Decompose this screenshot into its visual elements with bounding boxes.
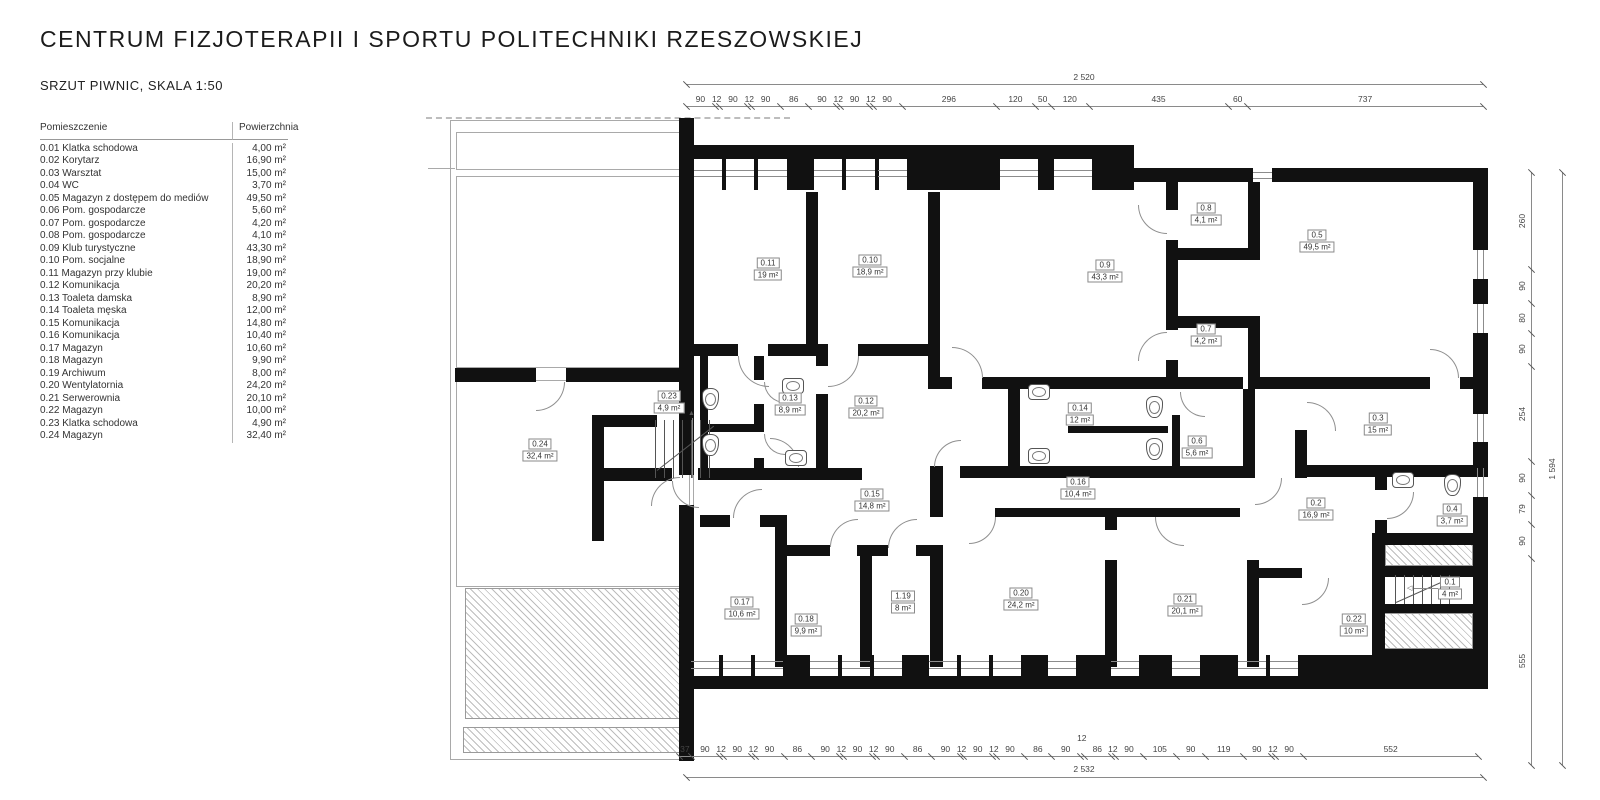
door-arc bbox=[1180, 392, 1205, 417]
dim-segment-label: 12 bbox=[834, 94, 843, 104]
wall bbox=[1021, 655, 1048, 676]
wall bbox=[1068, 426, 1168, 433]
room-label-0-20: 0.2024,2 m² bbox=[1003, 588, 1038, 611]
room-label-0-9: 0.943,3 m² bbox=[1087, 260, 1122, 283]
wall bbox=[700, 515, 730, 527]
dim-total-line bbox=[686, 777, 1483, 778]
wall bbox=[875, 159, 879, 190]
room-number: 0.4 bbox=[1442, 504, 1461, 515]
room-label-0-6: 0.65,6 m² bbox=[1182, 436, 1213, 459]
door-arc bbox=[1155, 517, 1184, 546]
door-arc bbox=[934, 440, 961, 467]
door-arc bbox=[969, 517, 996, 544]
dim-segment-label: 737 bbox=[1358, 94, 1372, 104]
dim-segment-label: 80 bbox=[1517, 313, 1527, 322]
wall bbox=[455, 368, 536, 382]
wall bbox=[1038, 159, 1054, 190]
window-glazing bbox=[1477, 304, 1478, 333]
door-arc bbox=[1138, 332, 1167, 361]
wall bbox=[1248, 316, 1260, 389]
room-number: 0.8 bbox=[1196, 203, 1215, 214]
room-area: 24,2 m² bbox=[1003, 600, 1038, 611]
wall bbox=[679, 505, 694, 761]
wall bbox=[783, 655, 810, 676]
dim-segment-label: 86 bbox=[793, 744, 802, 754]
room-area: 43,3 m² bbox=[1087, 272, 1122, 283]
room-number: 0.9 bbox=[1095, 260, 1114, 271]
wall bbox=[1166, 360, 1178, 389]
floor-plan: ▲◁0.1119 m²0.1018,9 m²0.943,3 m²0.84,1 m… bbox=[0, 0, 1600, 800]
dim-segment-label: 90 bbox=[700, 744, 709, 754]
room-number: 1.19 bbox=[891, 591, 915, 602]
room-number: 0.12 bbox=[854, 396, 878, 407]
room-area: 15 m² bbox=[1364, 425, 1392, 436]
wall bbox=[842, 159, 846, 190]
room-area: 4,9 m² bbox=[654, 403, 685, 414]
dim-segment-label: 50 bbox=[1038, 94, 1047, 104]
dim-segment-label: 120 bbox=[1063, 94, 1077, 104]
dim-segment-label: 90 bbox=[732, 744, 741, 754]
annex-upper-area bbox=[456, 176, 686, 368]
dim-segment-label: 435 bbox=[1151, 94, 1165, 104]
wall bbox=[838, 655, 842, 676]
dim-segment-label: 90 bbox=[1517, 473, 1527, 482]
dim-segment-label: 90 bbox=[1517, 536, 1527, 545]
window-glazing bbox=[874, 668, 902, 669]
wall bbox=[787, 545, 830, 556]
wall bbox=[754, 404, 764, 432]
dim-segment-label: 90 bbox=[1124, 744, 1133, 754]
wall bbox=[1295, 430, 1307, 478]
room-number: 0.17 bbox=[730, 597, 754, 608]
window-glazing bbox=[1253, 172, 1272, 173]
room-number: 0.24 bbox=[528, 439, 552, 450]
dim-segment-label: 90 bbox=[882, 94, 891, 104]
sink-icon bbox=[1028, 384, 1050, 400]
wall bbox=[928, 192, 940, 389]
room-number: 0.2 bbox=[1306, 498, 1325, 509]
sink-icon bbox=[1028, 448, 1050, 464]
dim-total-label: 2 532 bbox=[1073, 764, 1094, 774]
window-glazing bbox=[810, 661, 838, 662]
dim-segment-label: 90 bbox=[850, 94, 859, 104]
dim-segment-label: 90 bbox=[1284, 744, 1293, 754]
wall bbox=[1105, 560, 1117, 667]
dim-segment-label: 90 bbox=[885, 744, 894, 754]
room-area: 4,2 m² bbox=[1191, 336, 1222, 347]
toilet-icon bbox=[1146, 438, 1163, 460]
door-arc bbox=[1387, 492, 1414, 519]
room-number: 0.15 bbox=[860, 489, 884, 500]
room-label-0-15: 0.1514,8 m² bbox=[854, 489, 889, 512]
wall bbox=[1375, 533, 1488, 545]
door-arc bbox=[764, 434, 785, 455]
room-label-0-18: 0.189,9 m² bbox=[791, 614, 822, 637]
room-label-1-19: 1.198 m² bbox=[891, 591, 915, 614]
wall bbox=[592, 415, 604, 541]
wall bbox=[787, 159, 814, 190]
window-glazing bbox=[691, 668, 719, 669]
wall bbox=[1105, 508, 1117, 530]
window-glazing bbox=[1477, 468, 1478, 497]
room-area: 19 m² bbox=[754, 270, 782, 281]
dim-segment-label: 90 bbox=[941, 744, 950, 754]
window-glazing bbox=[1253, 178, 1272, 179]
dim-segment-label: 90 bbox=[1517, 345, 1527, 354]
stairs-023-arrow-line bbox=[692, 418, 693, 478]
dim-segment-label: 90 bbox=[973, 744, 982, 754]
room-label-0-11: 0.1119 m² bbox=[754, 258, 782, 281]
door-arc bbox=[733, 489, 762, 518]
room-label-0-16: 0.1610,4 m² bbox=[1060, 477, 1095, 500]
dim-segment-label: 12 bbox=[745, 94, 754, 104]
wall bbox=[957, 655, 961, 676]
window-glazing bbox=[1111, 668, 1139, 669]
dim-segment-label: 119 bbox=[1217, 744, 1231, 754]
wall bbox=[1460, 377, 1488, 389]
wall bbox=[1375, 477, 1387, 490]
window-glazing bbox=[726, 176, 754, 177]
window-glazing bbox=[814, 170, 842, 171]
site-boundary-dashed-line bbox=[426, 117, 790, 119]
door-arc bbox=[1255, 478, 1282, 505]
wall bbox=[1200, 655, 1238, 676]
wall bbox=[768, 344, 828, 356]
room-label-0-7: 0.74,2 m² bbox=[1191, 324, 1222, 347]
window-glazing bbox=[846, 176, 875, 177]
room-area: 16,9 m² bbox=[1298, 510, 1333, 521]
window-glazing bbox=[1270, 661, 1298, 662]
wall bbox=[989, 655, 993, 676]
room-number: 0.16 bbox=[1066, 477, 1090, 488]
dim-segment-label: 90 bbox=[817, 94, 826, 104]
window-glazing bbox=[1000, 176, 1038, 177]
toilet-icon bbox=[702, 388, 719, 410]
dim-segment-label: 12 bbox=[957, 744, 966, 754]
wall bbox=[1473, 168, 1488, 250]
wall bbox=[930, 466, 943, 517]
room-area: 14,8 m² bbox=[854, 501, 889, 512]
wall bbox=[982, 377, 1243, 389]
sink-icon bbox=[1392, 472, 1414, 488]
room-label-0-17: 0.1710,6 m² bbox=[724, 597, 759, 620]
dim-segment-label: 12 bbox=[837, 744, 846, 754]
door-arc bbox=[1302, 578, 1329, 605]
room-label-0-14: 0.1412 m² bbox=[1066, 403, 1094, 426]
dim-total-line bbox=[686, 84, 1483, 85]
room-label-0-13: 0.138,9 m² bbox=[775, 393, 806, 416]
door-arc bbox=[1430, 349, 1459, 378]
wall bbox=[775, 515, 787, 667]
door-arc bbox=[828, 356, 859, 387]
dim-segment-label: 90 bbox=[696, 94, 705, 104]
room-area: 18,9 m² bbox=[852, 267, 887, 278]
wall bbox=[960, 466, 1243, 478]
wall bbox=[698, 468, 862, 480]
door-arc bbox=[830, 519, 858, 547]
window-glazing bbox=[694, 176, 722, 177]
wall bbox=[679, 145, 1134, 159]
toilet-icon bbox=[1444, 474, 1461, 496]
room-area: 20,1 m² bbox=[1167, 606, 1202, 617]
room-number: 0.13 bbox=[778, 393, 802, 404]
dim-total-label: 1 594 bbox=[1547, 458, 1557, 479]
dim-segment-label: 90 bbox=[1252, 744, 1261, 754]
room-number: 0.20 bbox=[1009, 588, 1033, 599]
room-label-0-10: 0.1018,9 m² bbox=[852, 255, 887, 278]
wall bbox=[679, 159, 694, 190]
window-glazing bbox=[1172, 661, 1200, 662]
room-label-0-12: 0.1220,2 m² bbox=[848, 396, 883, 419]
wall bbox=[1253, 377, 1430, 389]
window-glazing bbox=[1172, 668, 1200, 669]
wall bbox=[679, 655, 691, 676]
stairs-01-arrow-line bbox=[1414, 588, 1438, 589]
dim-segment-label: 60 bbox=[1233, 94, 1242, 104]
wall bbox=[1247, 568, 1302, 578]
room-number: 0.22 bbox=[1342, 614, 1366, 625]
window-glazing bbox=[694, 170, 722, 171]
door-arc bbox=[888, 519, 917, 548]
wall bbox=[1473, 279, 1488, 304]
dim-segment-label: 90 bbox=[765, 744, 774, 754]
wall bbox=[1166, 182, 1178, 210]
dim-segment-label: 90 bbox=[1186, 744, 1195, 754]
wall bbox=[719, 655, 723, 676]
wall bbox=[860, 545, 872, 667]
room-number: 0.10 bbox=[858, 255, 882, 266]
room-area: 3,7 m² bbox=[1437, 516, 1468, 527]
window-glazing bbox=[842, 661, 870, 662]
dim-segment-label: 555 bbox=[1517, 654, 1527, 668]
arrow-up-icon: ▲ bbox=[688, 410, 695, 417]
wall bbox=[754, 159, 758, 190]
room-area: 9,9 m² bbox=[791, 626, 822, 637]
wall bbox=[1134, 168, 1253, 182]
window-glazing bbox=[878, 170, 907, 171]
wall bbox=[1372, 649, 1488, 679]
room-label-0-4: 0.43,7 m² bbox=[1437, 504, 1468, 527]
hatch-area bbox=[1382, 613, 1473, 649]
dim-segment-label: 90 bbox=[728, 94, 737, 104]
room-label-0-22: 0.2210 m² bbox=[1340, 614, 1368, 637]
wall bbox=[1166, 248, 1260, 260]
door-arc bbox=[952, 347, 983, 378]
room-label-0-2: 0.216,9 m² bbox=[1298, 498, 1333, 521]
window-glazing bbox=[929, 668, 957, 669]
room-area: 5,6 m² bbox=[1182, 448, 1213, 459]
room-label-0-23: 0.234,9 m² bbox=[654, 391, 685, 414]
window-glazing bbox=[1000, 170, 1038, 171]
room-number: 0.3 bbox=[1368, 413, 1387, 424]
window-glazing bbox=[929, 661, 957, 662]
room-area: 8 m² bbox=[891, 603, 915, 614]
wall bbox=[934, 377, 952, 389]
window-glazing bbox=[846, 170, 875, 171]
dim-segment-label: 12 bbox=[749, 744, 758, 754]
dim-segment-label: 86 bbox=[1093, 744, 1102, 754]
window-glazing bbox=[1048, 661, 1076, 662]
room-label-0-3: 0.315 m² bbox=[1364, 413, 1392, 436]
wall bbox=[1092, 159, 1134, 190]
window-glazing bbox=[758, 170, 787, 171]
toilet-icon bbox=[1146, 396, 1163, 418]
dim-segment-label: 90 bbox=[1061, 744, 1070, 754]
window-glazing bbox=[1477, 250, 1478, 279]
room-number: 0.23 bbox=[657, 391, 681, 402]
annex-strip bbox=[456, 132, 686, 170]
window-glazing bbox=[878, 176, 907, 177]
window-glazing bbox=[810, 668, 838, 669]
dim-segment-label: 79 bbox=[1517, 505, 1527, 514]
dim-segment-label: 90 bbox=[1517, 281, 1527, 290]
window-glazing bbox=[1270, 668, 1298, 669]
dim-segment-label: 86 bbox=[1033, 744, 1042, 754]
room-label-0-8: 0.84,1 m² bbox=[1191, 203, 1222, 226]
window-glazing bbox=[1477, 414, 1478, 442]
window-glazing bbox=[961, 661, 989, 662]
dim-segment-label: 105 bbox=[1153, 744, 1167, 754]
wall bbox=[754, 458, 764, 468]
window-glazing bbox=[1238, 668, 1266, 669]
window-glazing bbox=[1054, 170, 1092, 171]
wall bbox=[1272, 168, 1488, 182]
dim-line bbox=[1531, 172, 1532, 765]
window-glazing bbox=[758, 176, 787, 177]
room-area: 32,4 m² bbox=[522, 451, 557, 462]
dim-segment-label: 90 bbox=[853, 744, 862, 754]
wall bbox=[907, 159, 1000, 190]
dim-segment-label: 90 bbox=[1005, 744, 1014, 754]
dim-total-line bbox=[1562, 172, 1563, 765]
window-glazing bbox=[1054, 176, 1092, 177]
room-area: 4,1 m² bbox=[1191, 215, 1222, 226]
dim-total-label: 2 520 bbox=[1073, 72, 1094, 82]
room-area: 49,5 m² bbox=[1299, 242, 1334, 253]
arrow-left-icon: ◁ bbox=[1407, 584, 1412, 592]
window-glazing bbox=[723, 661, 751, 662]
room-area: 10 m² bbox=[1340, 626, 1368, 637]
dim-segment-label: 120 bbox=[1008, 94, 1022, 104]
window-glazing bbox=[993, 661, 1021, 662]
window-glazing bbox=[993, 668, 1021, 669]
toilet-icon bbox=[702, 434, 719, 456]
room-number: 0.21 bbox=[1173, 594, 1197, 605]
dim-segment-label: 260 bbox=[1517, 213, 1527, 227]
window-glazing bbox=[726, 170, 754, 171]
wall bbox=[694, 344, 738, 356]
dim-segment-label: 12 bbox=[1077, 733, 1086, 743]
wall bbox=[1172, 415, 1180, 466]
dim-segment-label: 552 bbox=[1384, 744, 1398, 754]
room-number: 0.6 bbox=[1187, 436, 1206, 447]
window-glazing bbox=[723, 668, 751, 669]
room-label-0-24: 0.2432,4 m² bbox=[522, 439, 557, 462]
wall bbox=[566, 368, 694, 382]
wall bbox=[902, 655, 929, 676]
room-number: 0.18 bbox=[794, 614, 818, 625]
room-number: 0.1 bbox=[1440, 577, 1459, 588]
door-arc bbox=[1138, 205, 1167, 234]
room-label-0-1: 0.14 m² bbox=[1438, 577, 1462, 600]
wall bbox=[1266, 655, 1270, 676]
window-glazing bbox=[1111, 661, 1139, 662]
wall bbox=[1372, 604, 1488, 613]
wall bbox=[1139, 655, 1172, 676]
wall bbox=[1243, 389, 1255, 478]
dim-segment-label: 86 bbox=[789, 94, 798, 104]
window-glazing bbox=[874, 661, 902, 662]
window-glazing bbox=[1483, 468, 1484, 497]
wall bbox=[1473, 333, 1488, 414]
wall bbox=[1008, 389, 1020, 466]
window-glazing bbox=[1483, 250, 1484, 279]
room-number: 0.7 bbox=[1196, 324, 1215, 335]
room-area: 4 m² bbox=[1438, 589, 1462, 600]
wall bbox=[604, 415, 657, 427]
room-label-0-5: 0.549,5 m² bbox=[1299, 230, 1334, 253]
room-number: 0.11 bbox=[757, 258, 780, 269]
window-glazing bbox=[814, 176, 842, 177]
sink-icon bbox=[785, 450, 807, 466]
room-area: 10,4 m² bbox=[1060, 489, 1095, 500]
dim-segment-label: 254 bbox=[1517, 407, 1527, 421]
wall bbox=[806, 192, 818, 344]
room-area: 8,9 m² bbox=[775, 405, 806, 416]
window-glazing bbox=[691, 661, 719, 662]
hatch-area bbox=[463, 727, 688, 753]
wall bbox=[751, 655, 755, 676]
room-area: 20,2 m² bbox=[848, 408, 883, 419]
room-area: 12 m² bbox=[1066, 415, 1094, 426]
dim-segment-label: 86 bbox=[913, 744, 922, 754]
window-glazing bbox=[755, 668, 783, 669]
dim-segment-label: 296 bbox=[942, 94, 956, 104]
room-area: 10,6 m² bbox=[724, 609, 759, 620]
window-glazing bbox=[1483, 304, 1484, 333]
wall bbox=[722, 159, 726, 190]
wall bbox=[816, 394, 828, 468]
window-glazing bbox=[1238, 661, 1266, 662]
room-number: 0.5 bbox=[1307, 230, 1326, 241]
room-label-0-21: 0.2120,1 m² bbox=[1167, 594, 1202, 617]
door-arc bbox=[1307, 402, 1336, 431]
window-glazing bbox=[842, 668, 870, 669]
window-glazing bbox=[961, 668, 989, 669]
window-glazing bbox=[755, 661, 783, 662]
window-glazing bbox=[1483, 414, 1484, 442]
wall bbox=[995, 508, 1240, 517]
wall bbox=[930, 545, 943, 667]
room-number: 0.14 bbox=[1068, 403, 1092, 414]
hatch-area bbox=[465, 588, 688, 719]
window-glazing bbox=[1048, 668, 1076, 669]
wall bbox=[816, 356, 828, 366]
wall bbox=[1248, 182, 1260, 260]
dim-segment-label: 90 bbox=[820, 744, 829, 754]
dim-line bbox=[686, 106, 1483, 107]
dim-segment-label: 90 bbox=[761, 94, 770, 104]
